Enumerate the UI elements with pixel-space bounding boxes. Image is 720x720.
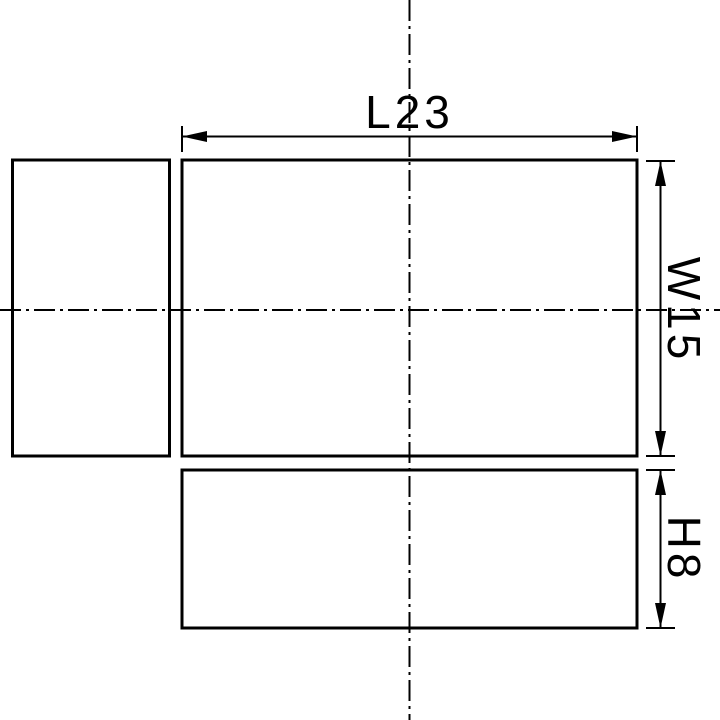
height-dimension-label: H8 xyxy=(658,516,710,583)
length-arrow-left-icon xyxy=(182,131,207,142)
side-view-outline xyxy=(13,160,170,456)
technical-drawing-page: L23 W15 H8 xyxy=(0,0,720,720)
width-arrow-up-icon xyxy=(655,161,666,186)
length-dimension-label: L23 xyxy=(365,86,454,138)
width-dimension-label: W15 xyxy=(658,257,710,364)
technical-drawing-canvas: L23 W15 H8 xyxy=(0,0,720,720)
height-arrow-down-icon xyxy=(655,603,666,628)
length-arrow-right-icon xyxy=(612,131,637,142)
width-dimension: W15 xyxy=(646,161,710,456)
width-arrow-down-icon xyxy=(655,431,666,456)
height-arrow-up-icon xyxy=(655,470,666,495)
height-dimension: H8 xyxy=(646,470,710,628)
